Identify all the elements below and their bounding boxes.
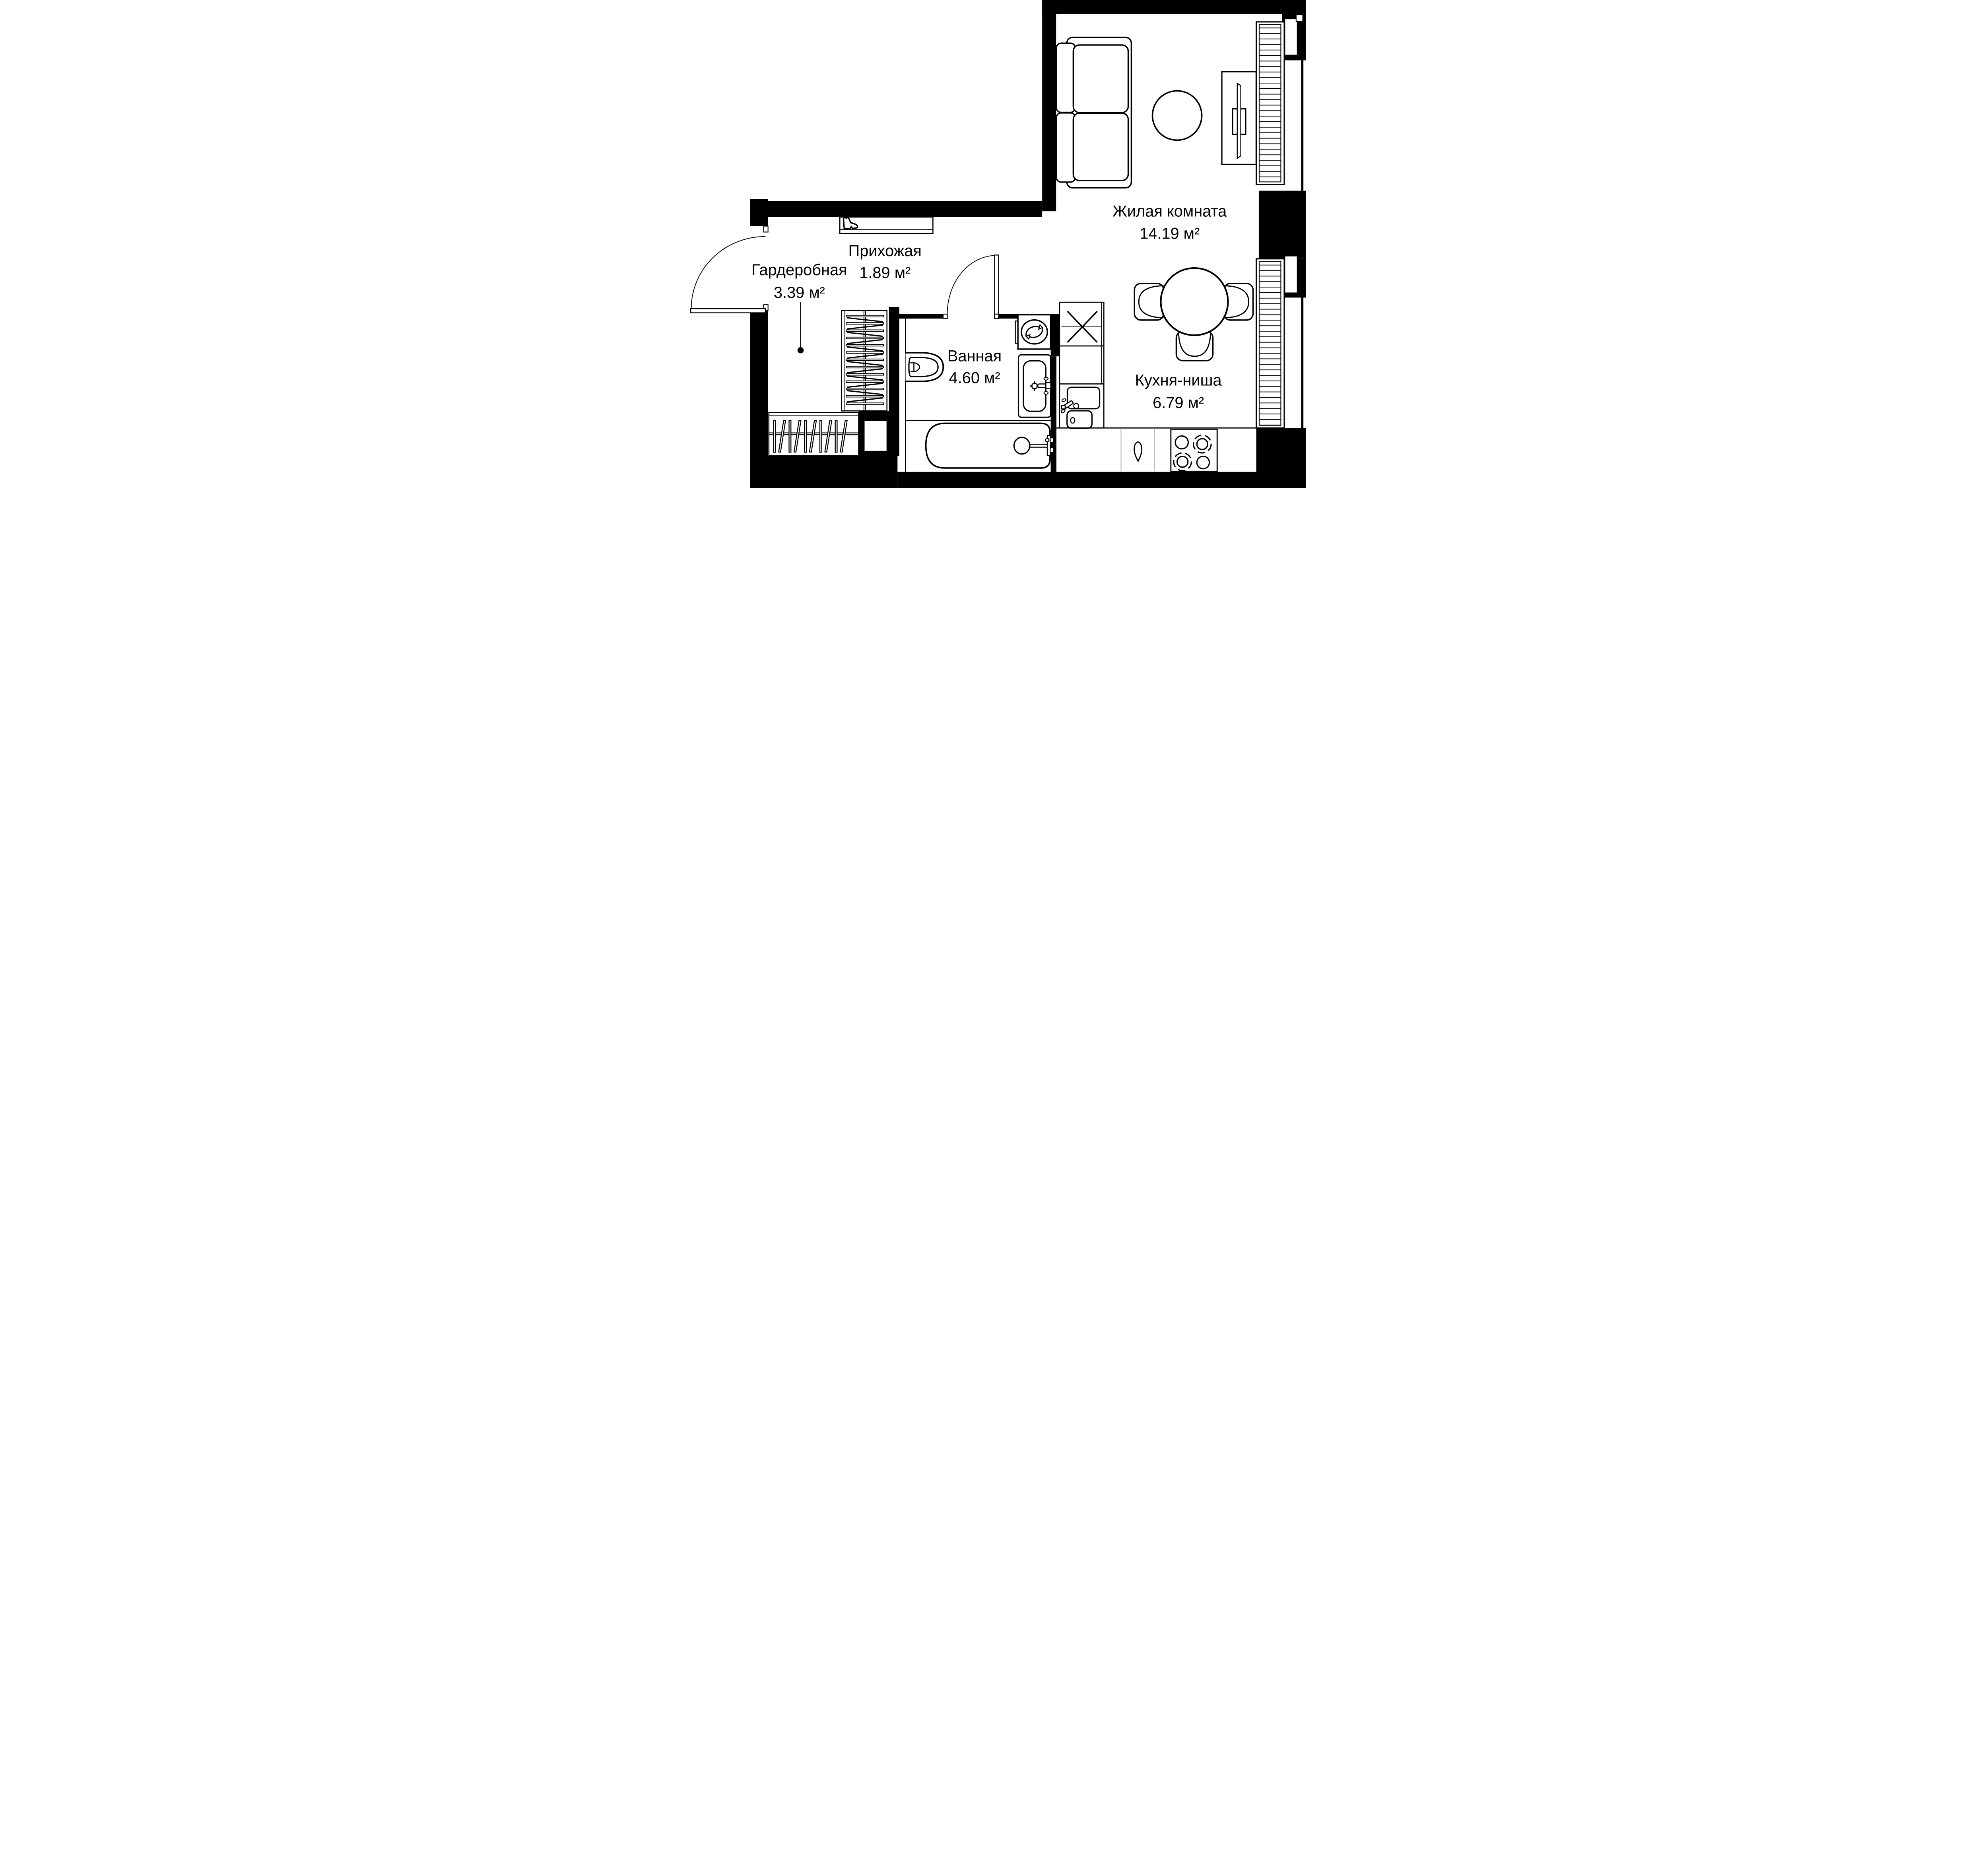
vent-shaft: [1060, 302, 1104, 346]
wall-top: [1042, 0, 1306, 14]
room-area-living: 14.19 м²: [1140, 225, 1200, 243]
room-label-wardrobe: Гардеробная: [751, 261, 847, 279]
drain-icon: [1074, 404, 1079, 409]
wall-bath-kitchen-lower: [1051, 356, 1056, 472]
wall-wardrobe-divider: [889, 307, 899, 456]
shaft-opening: [864, 420, 887, 451]
dining-table: [1161, 268, 1228, 335]
room-label-kitchen: Кухня-ниша: [1135, 371, 1222, 389]
room-area-bathroom: 4.60 м²: [949, 369, 1000, 387]
floorplan-page: Жилая комната 14.19 м² Прихожая 1.89 м² …: [682, 0, 1306, 488]
chair-left: [1134, 284, 1163, 320]
sofa-back-cushion: [1056, 113, 1075, 182]
door-jamb: [764, 226, 768, 232]
wall-right-mid: [1259, 191, 1306, 259]
room-label-bathroom: Ванная: [947, 347, 1002, 365]
door-jamb: [994, 314, 998, 319]
drain-icon: [1014, 437, 1030, 454]
window-kitchen: [1256, 259, 1284, 428]
wall-bath-top-left: [899, 314, 943, 319]
radiator-hatch-icon: [1259, 24, 1281, 182]
sink-basin-large: [1067, 387, 1099, 409]
room-area-wardrobe: 3.39 м²: [774, 284, 825, 301]
sofa-seat-cushion: [1073, 45, 1128, 113]
balcony-edge-upper: [1301, 58, 1303, 191]
kitchen-cabinet: [1060, 346, 1104, 384]
exterior-pier-top: [1285, 19, 1297, 55]
room-label-living: Жилая комната: [1112, 202, 1227, 220]
door-jamb: [943, 314, 947, 319]
balcony-edge-lower: [1301, 297, 1303, 428]
room-area-hallway: 1.89 м²: [859, 264, 911, 282]
kitchen-column: [1060, 302, 1104, 428]
wall-notch: [1296, 15, 1303, 21]
door-leaf: [691, 309, 765, 313]
radiator-hatch-icon: [1259, 261, 1281, 425]
wall-entry-block: [750, 199, 768, 226]
wardrobe-rack-tall: [841, 311, 887, 411]
wardrobe-rack-bottom: [769, 412, 859, 456]
shoe-shelf: [840, 217, 933, 233]
stove: [1171, 429, 1217, 471]
wall-bath-kitchen-upper: [1051, 314, 1060, 356]
bathtub: [926, 423, 1054, 468]
bathroom-sink: [1018, 355, 1050, 417]
sofa: [1056, 37, 1131, 188]
floorplan-drawing: Жилая комната 14.19 м² Прихожая 1.89 м² …: [682, 0, 1306, 488]
sofa-back-cushion: [1056, 43, 1075, 113]
wall-right-bottom: [1256, 428, 1306, 488]
exterior-pier-mid: [1285, 256, 1297, 293]
drum-icon: [1021, 320, 1047, 344]
room-label-hallway: Прихожая: [848, 242, 922, 260]
drain-icon: [1071, 418, 1075, 423]
window-living: [1256, 22, 1284, 185]
washing-machine: [1015, 315, 1051, 349]
room-area-kitchen: 6.79 м²: [1153, 394, 1204, 412]
toilet: [906, 353, 944, 381]
wall-hallway-top: [768, 201, 1042, 217]
sofa-seat-cushion: [1073, 113, 1128, 181]
rug: [1153, 91, 1202, 140]
tv-console: [1222, 72, 1256, 165]
wall-living-left: [1042, 0, 1056, 211]
area-leader-dot: [798, 347, 804, 354]
door-leaf: [995, 255, 999, 314]
wall-bottom: [897, 472, 1259, 488]
tv-icon: [1237, 83, 1241, 158]
